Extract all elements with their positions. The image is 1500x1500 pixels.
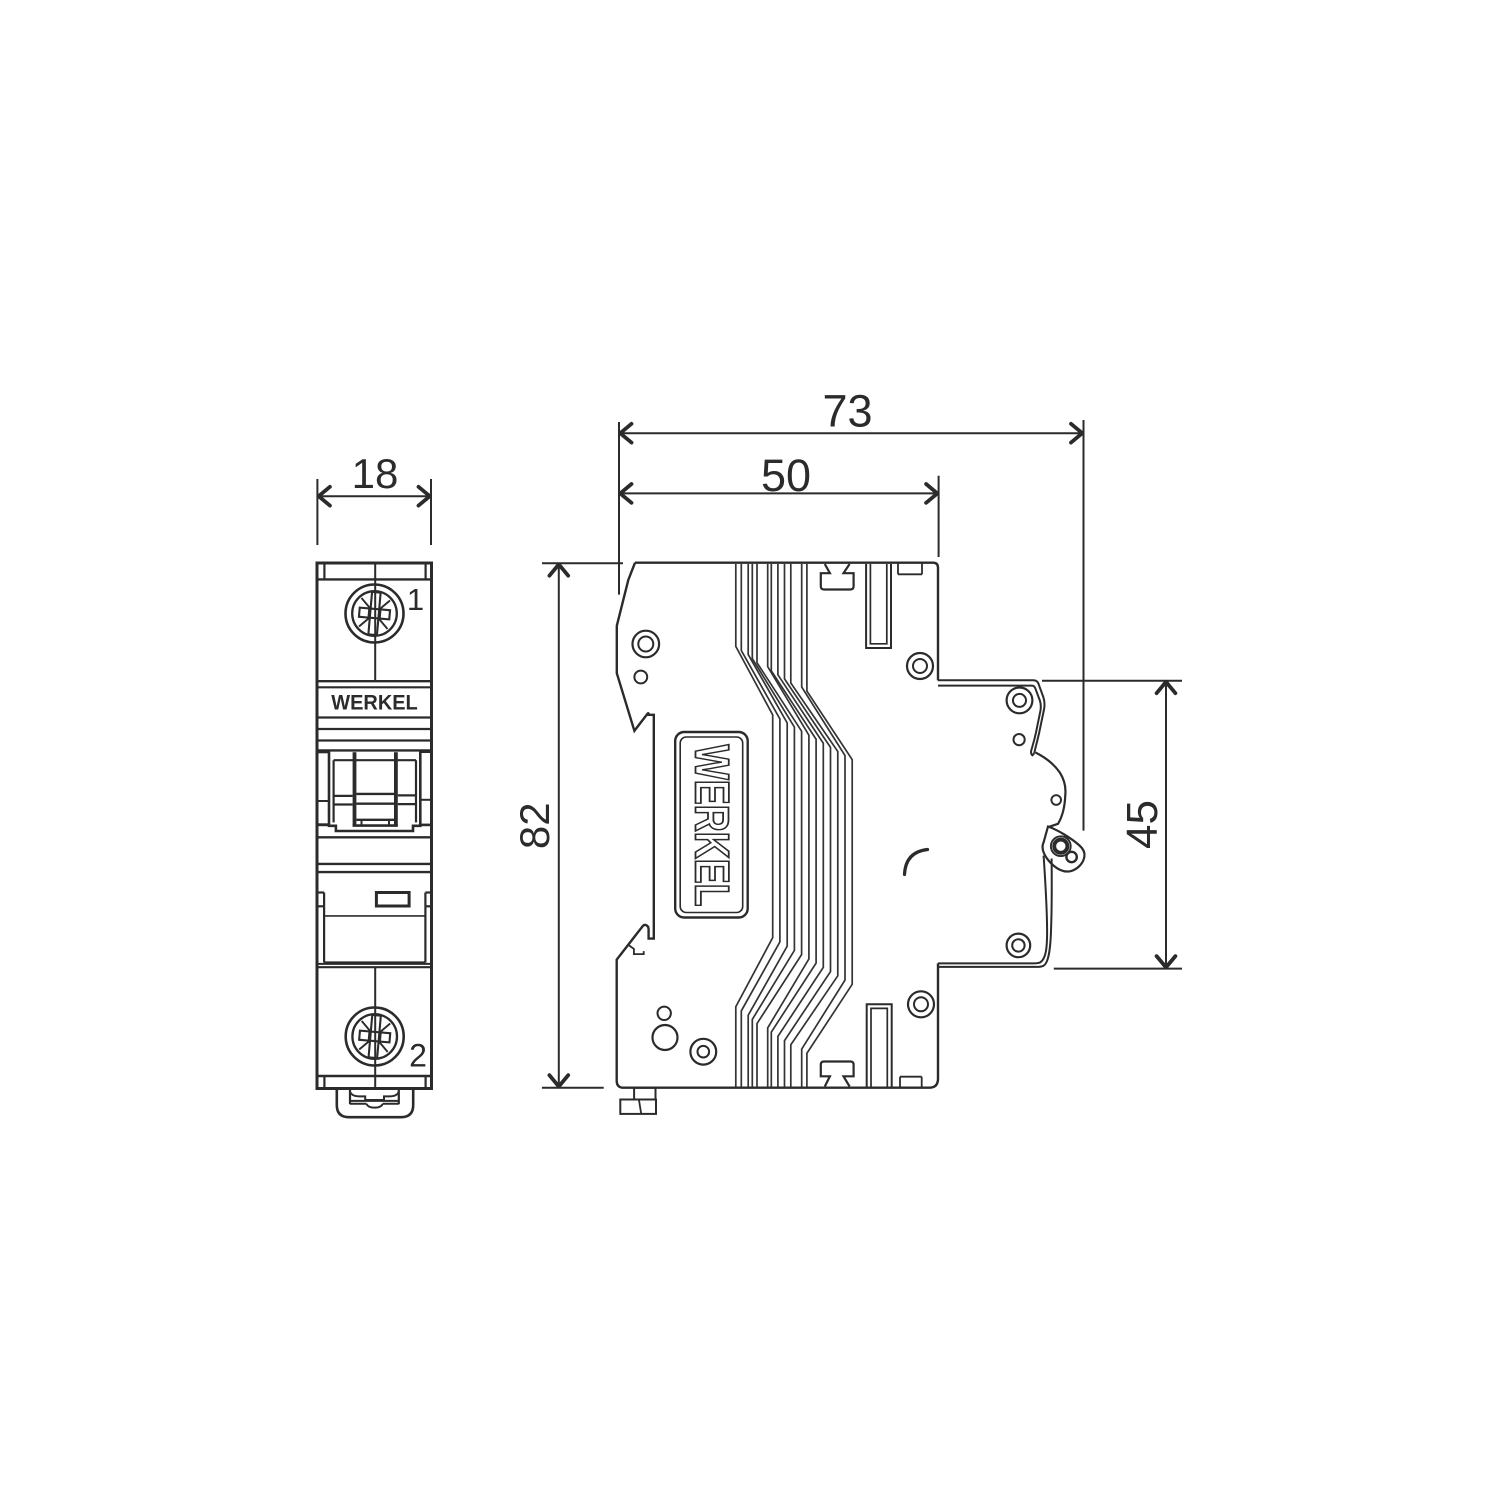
svg-text:2: 2 [409, 1038, 427, 1074]
svg-text:45: 45 [1118, 800, 1167, 849]
svg-text:82: 82 [511, 802, 558, 849]
svg-text:73: 73 [822, 386, 872, 437]
svg-text:50: 50 [761, 450, 811, 501]
svg-text:WERKEL: WERKEL [685, 745, 738, 907]
svg-text:WERKEL: WERKEL [331, 691, 418, 715]
svg-text:1: 1 [407, 582, 424, 617]
svg-text:18: 18 [352, 450, 399, 497]
